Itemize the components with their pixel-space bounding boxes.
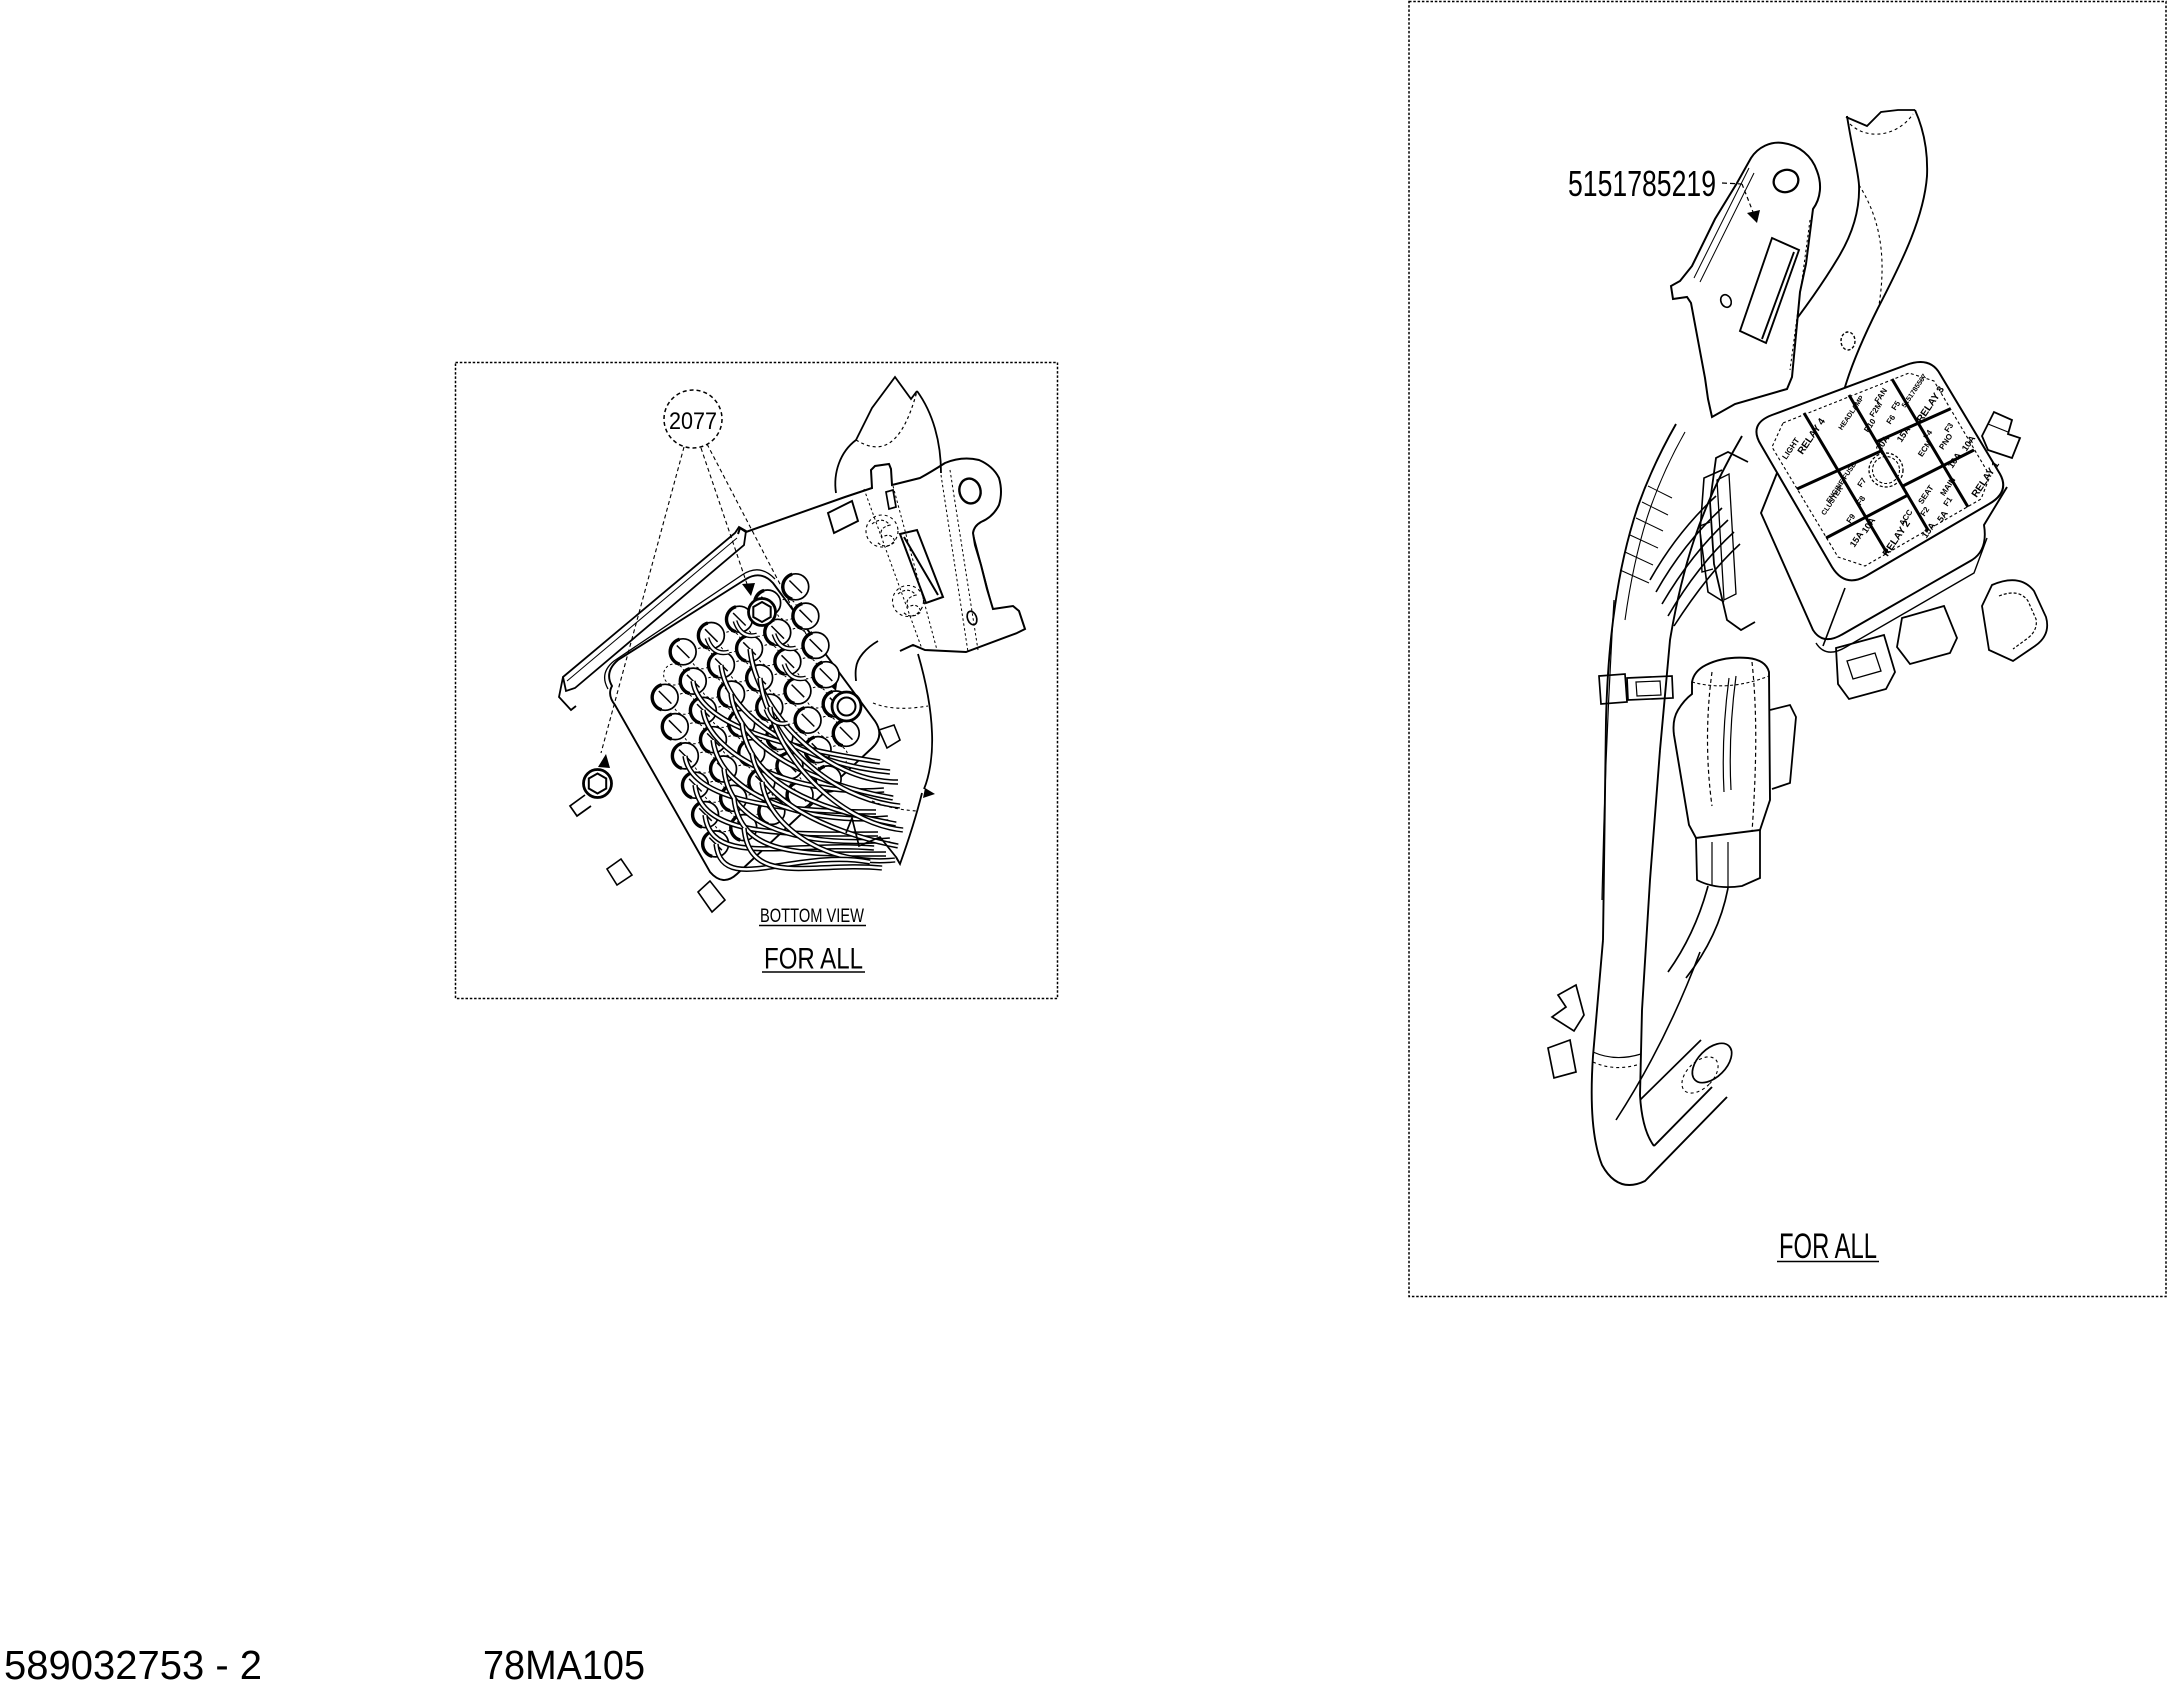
svg-text:589032753 - 2: 589032753 - 2 <box>4 1642 262 1688</box>
svg-text:5151785219: 5151785219 <box>1568 163 1716 204</box>
svg-text:78MA105: 78MA105 <box>483 1642 645 1688</box>
svg-text:BOTTOM VIEW: BOTTOM VIEW <box>760 905 864 927</box>
svg-text:FOR ALL: FOR ALL <box>764 943 863 976</box>
svg-text:FOR ALL: FOR ALL <box>1779 1226 1877 1266</box>
svg-text:2077: 2077 <box>669 409 717 435</box>
